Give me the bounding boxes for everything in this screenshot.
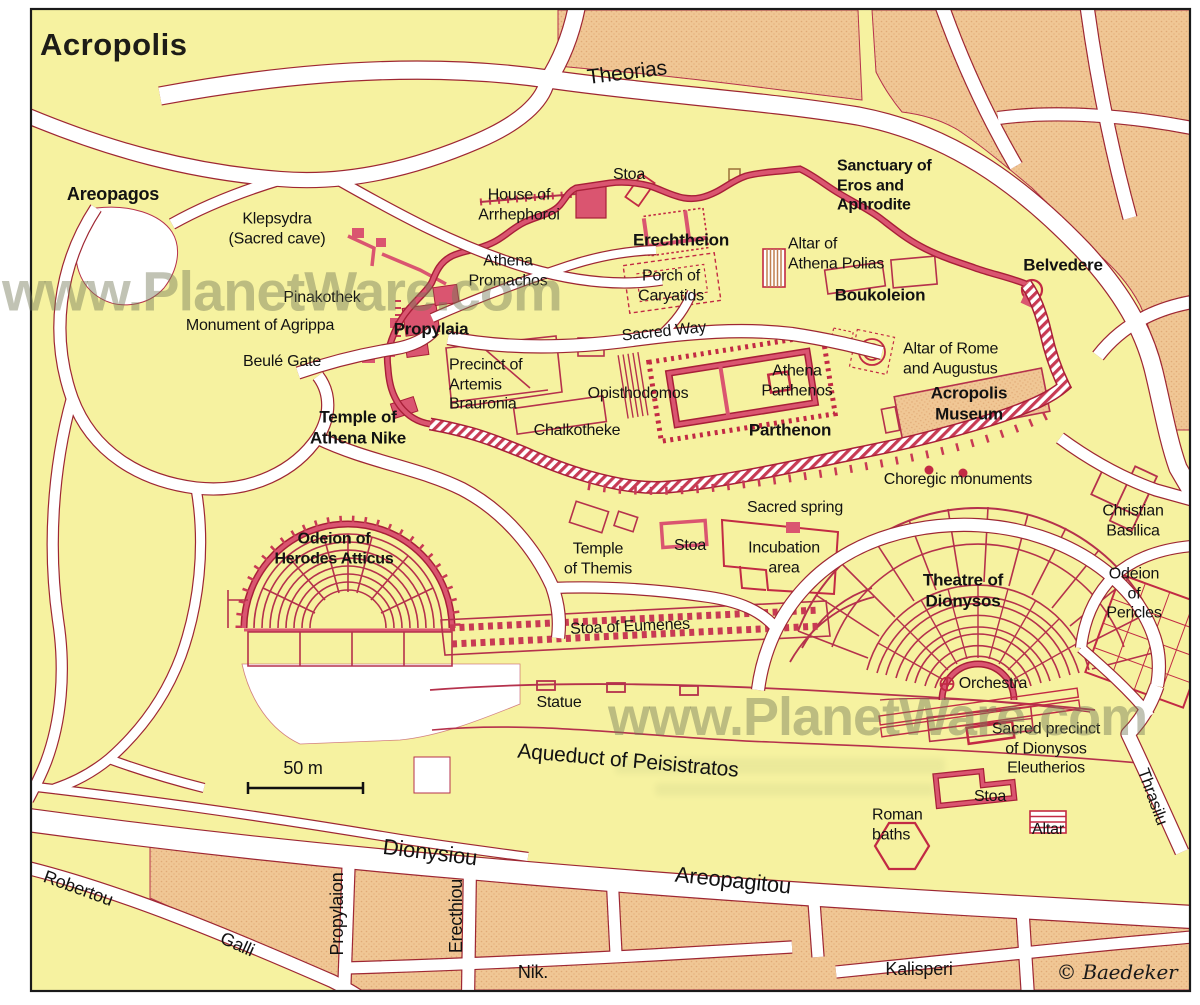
label-precinct-artemis: Precinct of Artemis Brauronia	[449, 356, 522, 415]
acropolis-map: Acropolis Areopagos Klepsydra (Sacred ca…	[0, 0, 1200, 1005]
copyright: © Baedeker	[1057, 960, 1178, 984]
label-klepsydra: Klepsydra (Sacred cave)	[229, 209, 326, 248]
label-christian-basilica: Christian Basilica	[1102, 501, 1163, 540]
label-theatre-dionysos: Theatre of Dionysos	[923, 570, 1003, 611]
label-beule-gate: Beulé Gate	[243, 352, 321, 372]
label-sanctuary-eros: Sanctuary of Eros and Aphrodite	[837, 157, 932, 216]
label-altar-bottom: Altar	[1032, 820, 1064, 840]
label-statue: Statue	[536, 693, 581, 713]
label-athena-parthenos: Athena Parthenos	[761, 361, 832, 400]
watermark: www.PlanetWare.com	[2, 259, 562, 324]
street-nik: Nik.	[518, 962, 548, 984]
label-erechtheion: Erechtheion	[633, 231, 729, 252]
street-propylaion: Propylaion	[327, 872, 349, 955]
label-porch-caryatids: Porch of Caryatids	[638, 266, 704, 305]
label-stoa-mid: Stoa	[674, 536, 706, 556]
label-odeion-pericles: Odeion of Pericles	[1106, 565, 1161, 624]
label-incubation-area: Incubation area	[748, 538, 820, 577]
label-house-arrhephoroi: House of Arrhephoroi	[478, 185, 559, 224]
map-title: Acropolis	[40, 26, 187, 64]
watermark: www.PlanetWare.com	[608, 686, 1147, 748]
label-altar-rome: Altar of Rome and Augustus	[903, 339, 998, 378]
label-sacred-spring: Sacred spring	[747, 498, 843, 518]
label-temple-athena-nike: Temple of Athena Nike	[310, 407, 406, 448]
map-canvas	[0, 0, 1200, 1005]
altar-athena-polias-symbol	[763, 249, 785, 287]
label-roman-baths: Roman baths	[872, 805, 923, 844]
street-erecthiou: Erecthiou	[446, 879, 468, 953]
label-altar-athena-polias: Altar of Athena Polias	[788, 234, 884, 273]
scale-label: 50 m	[283, 758, 322, 780]
label-temple-themis: Temple of Themis	[564, 539, 632, 578]
label-stoa-bottom: Stoa	[974, 787, 1006, 807]
label-choregic-monuments: Choregic monuments	[884, 470, 1032, 490]
label-acropolis-museum: Acropolis Museum	[931, 383, 1008, 424]
label-parthenon: Parthenon	[749, 421, 831, 442]
label-belvedere: Belvedere	[1023, 256, 1102, 277]
street-kalisperi: Kalisperi	[885, 959, 952, 981]
bleed-through	[655, 783, 935, 796]
label-odeion-herodes: Odeion of Herodes Atticus	[274, 529, 393, 568]
label-chalkotheke: Chalkotheke	[534, 421, 621, 441]
label-stoa-top: Stoa	[613, 165, 645, 185]
label-areopagos: Areopagos	[67, 184, 159, 206]
label-boukoleion: Boukoleion	[835, 286, 926, 307]
label-opisthodomos: Opisthodomos	[588, 384, 689, 404]
